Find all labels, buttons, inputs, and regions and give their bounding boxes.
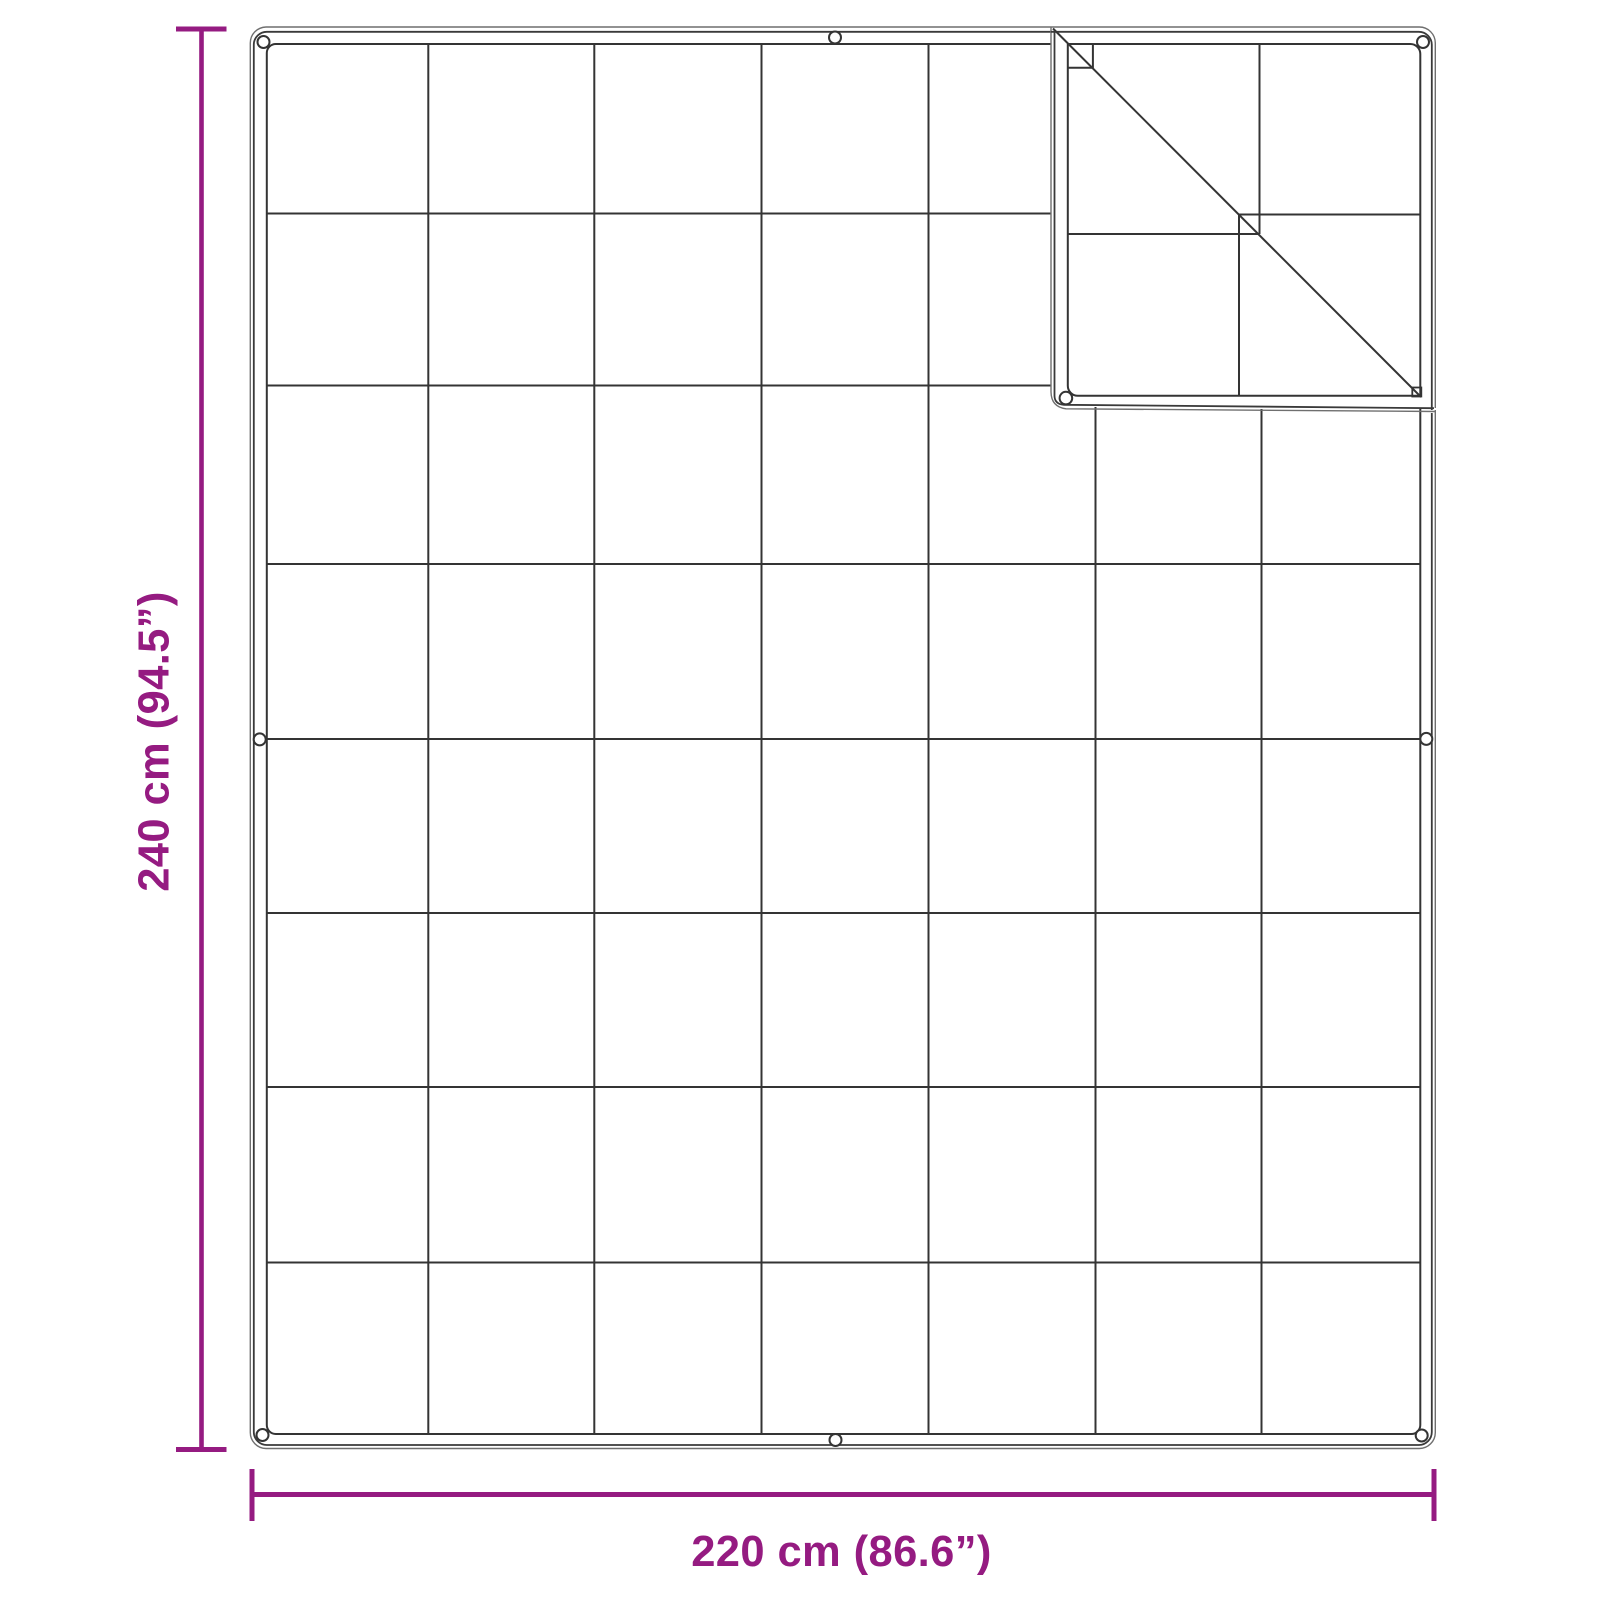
svg-text:240 cm (94.5”): 240 cm (94.5”) [131,591,179,892]
svg-text:220 cm (86.6”): 220 cm (86.6”) [691,1528,992,1576]
